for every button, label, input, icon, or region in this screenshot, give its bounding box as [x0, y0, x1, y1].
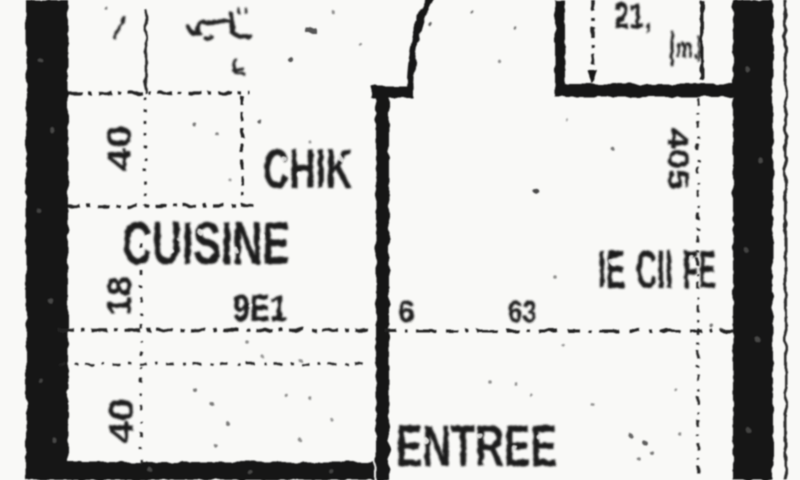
- svg-text:CII: CII: [636, 240, 673, 300]
- svg-text:IE: IE: [598, 240, 625, 300]
- svg-text:18: 18: [101, 276, 139, 316]
- svg-text:405: 405: [661, 128, 694, 190]
- svg-text:FE: FE: [683, 240, 716, 300]
- svg-text:m.: m.: [676, 32, 698, 65]
- svg-text:CHIK: CHIK: [263, 137, 352, 200]
- svg-text:40: 40: [101, 125, 139, 171]
- svg-text:9E1: 9E1: [233, 288, 287, 330]
- svg-text:40: 40: [103, 398, 141, 444]
- svg-text:21,: 21,: [614, 0, 652, 36]
- svg-text:CUISINE: CUISINE: [122, 210, 290, 277]
- svg-text:6: 6: [398, 294, 415, 329]
- svg-text:63: 63: [508, 294, 537, 329]
- svg-text:ENTREE: ENTREE: [396, 414, 557, 479]
